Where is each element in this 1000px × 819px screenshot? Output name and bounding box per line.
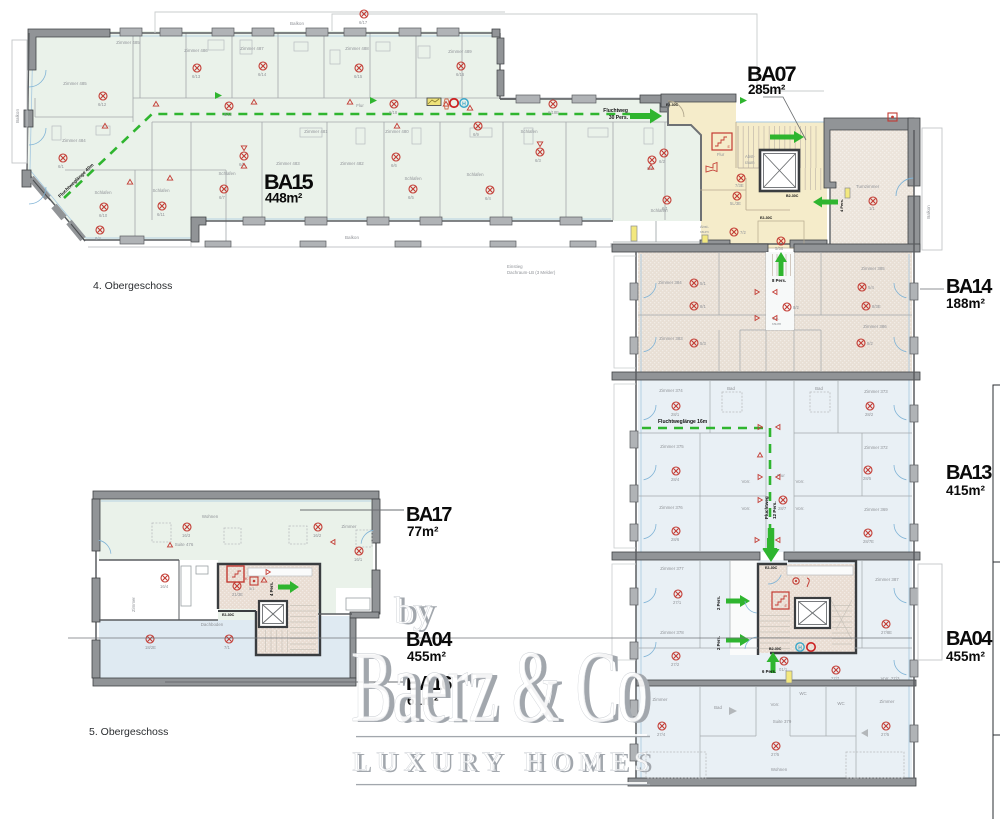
svg-text:7/2: 7/2 (740, 230, 746, 235)
svg-text:raum: raum (745, 160, 755, 165)
svg-text:6/6: 6/6 (391, 163, 397, 168)
svg-text:BA14: BA14 (946, 276, 993, 298)
svg-text:Balkon: Balkon (345, 235, 359, 240)
svg-text:6/7: 6/7 (219, 195, 225, 200)
svg-text:27/4: 27/4 (657, 732, 666, 737)
svg-text:Zimmer 369: Zimmer 369 (864, 507, 888, 512)
svg-text:Balkon: Balkon (290, 21, 304, 26)
svg-text:6/13: 6/13 (192, 74, 201, 79)
svg-text:Zimmer 374: Zimmer 374 (659, 388, 683, 393)
svg-text:Zimmer 383: Zimmer 383 (659, 336, 683, 341)
svg-text:1/1: 1/1 (869, 206, 875, 211)
svg-text:Zimmer 480: Zimmer 480 (385, 129, 409, 134)
svg-text:Zimmer 483: Zimmer 483 (276, 161, 300, 166)
svg-text:7/3E: 7/3E (735, 183, 744, 188)
svg-text:6/11: 6/11 (157, 212, 166, 217)
svg-text:BA13: BA13 (946, 462, 992, 484)
svg-text:Bad: Bad (727, 386, 735, 391)
svg-text:Bad: Bad (815, 386, 823, 391)
svg-text:6/15: 6/15 (354, 74, 363, 79)
svg-text:Fluchtweglänge 16m: Fluchtweglänge 16m (658, 419, 708, 425)
svg-text:Wohnen: Wohnen (202, 514, 219, 519)
svg-text:Fluchtweg: Fluchtweg (603, 108, 628, 114)
svg-text:28/4: 28/4 (671, 477, 680, 482)
svg-text:Zimmer 489: Zimmer 489 (448, 49, 472, 54)
svg-text:Zimmer 373: Zimmer 373 (864, 389, 888, 394)
svg-text:5L/3E: 5L/3E (730, 201, 741, 206)
svg-text:27/1: 27/1 (673, 600, 682, 605)
svg-text:Zimmer 376: Zimmer 376 (659, 505, 683, 510)
svg-text:Zimmer 375: Zimmer 375 (660, 444, 684, 449)
svg-text:6/1: 6/1 (58, 164, 64, 169)
svg-text:Abst-: Abst- (700, 225, 710, 229)
svg-text:448m²: 448m² (265, 191, 303, 206)
svg-text:H: H (798, 645, 802, 651)
svg-text:8/3E: 8/3E (872, 304, 881, 309)
svg-text:5/1: 5/1 (700, 281, 706, 286)
svg-text:6/9: 6/9 (473, 132, 479, 137)
svg-text:Dachboden: Dachboden (201, 622, 224, 627)
svg-text:Vorr.: Vorr. (770, 702, 779, 707)
svg-text:Zimmer 486: Zimmer 486 (184, 48, 208, 53)
svg-text:Zimmer 372: Zimmer 372 (864, 445, 888, 450)
svg-text:4 Pers.: 4 Pers. (269, 582, 274, 596)
svg-text:5/3: 5/3 (700, 341, 706, 346)
svg-text:12 Pers.: 12 Pers. (772, 501, 777, 519)
svg-text:BA17: BA17 (406, 504, 452, 526)
svg-text:E2-30C: E2-30C (760, 216, 773, 220)
svg-text:Zimmer: Zimmer (131, 597, 136, 612)
svg-text:18/2E: 18/2E (145, 645, 156, 650)
svg-text:6/17: 6/17 (359, 20, 368, 25)
svg-text:6/3: 6/3 (535, 158, 541, 163)
svg-text:27/8E: 27/8E (881, 630, 892, 635)
svg-text:Suite 476: Suite 476 (175, 542, 194, 547)
svg-text:Flur: Flur (356, 103, 364, 108)
svg-text:Zimmer 385: Zimmer 385 (861, 266, 885, 271)
svg-text:28/2: 28/2 (865, 412, 874, 417)
svg-text:Vorr.: Vorr. (741, 506, 750, 511)
svg-text:B2-30C: B2-30C (769, 647, 782, 651)
svg-text:415m²: 415m² (946, 483, 986, 498)
svg-text:2 Pers.: 2 Pers. (716, 596, 721, 610)
svg-text:WC: WC (837, 701, 844, 706)
svg-text:Zimmer 387: Zimmer 387 (875, 577, 899, 582)
svg-text:Balkon: Balkon (15, 109, 20, 123)
svg-text:28/6: 28/6 (671, 537, 680, 542)
svg-text:Zimmer 487: Zimmer 487 (240, 46, 264, 51)
svg-text:Turnzimmer: Turnzimmer (856, 184, 880, 189)
svg-text:Zimmer 484: Zimmer 484 (62, 138, 86, 143)
svg-text:Zimmer 482: Zimmer 482 (340, 161, 364, 166)
svg-text:16/3: 16/3 (182, 533, 191, 538)
svg-text:Zimmer 488: Zimmer 488 (345, 46, 369, 51)
svg-text:8/1: 8/1 (700, 304, 706, 309)
svg-text:27/2: 27/2 (671, 662, 680, 667)
svg-text:28/7: 28/7 (778, 506, 787, 511)
svg-text:H: H (462, 101, 466, 107)
svg-text:4. Obergeschoss: 4. Obergeschoss (93, 280, 172, 292)
svg-text:30 Pers.: 30 Pers. (609, 115, 629, 121)
svg-text:raum: raum (772, 321, 782, 326)
svg-text:16/2: 16/2 (313, 533, 322, 538)
svg-text:5/1: 5/1 (249, 586, 255, 591)
svg-text:Suite 379: Suite 379 (773, 719, 792, 724)
svg-text:455m²: 455m² (946, 649, 986, 664)
svg-text:Vorr. 27/3: Vorr. 27/3 (881, 676, 900, 681)
svg-text:6/12: 6/12 (98, 102, 107, 107)
svg-text:16/1: 16/1 (354, 557, 363, 562)
svg-text:E2-30C: E2-30C (666, 103, 679, 107)
svg-text:E2-30C: E2-30C (765, 566, 778, 570)
svg-text:E2-30C: E2-30C (222, 613, 235, 617)
svg-text:6/4: 6/4 (485, 196, 491, 201)
svg-text:Wohnen: Wohnen (771, 767, 788, 772)
svg-text:28/5: 28/5 (863, 476, 872, 481)
svg-text:27/7: 27/7 (831, 676, 840, 681)
svg-text:Vorr.: Vorr. (795, 479, 804, 484)
svg-text:28/7E: 28/7E (863, 539, 874, 544)
svg-text:Schlafen: Schlafen (218, 171, 236, 176)
svg-text:5/56: 5/56 (775, 246, 784, 251)
svg-text:BA04: BA04 (946, 628, 993, 650)
svg-text:188m²: 188m² (946, 296, 986, 311)
svg-text:Bad: Bad (714, 705, 722, 710)
svg-text:K: K (245, 576, 248, 581)
svg-text:Zimmer: Zimmer (880, 699, 895, 704)
svg-text:5/4: 5/4 (868, 285, 874, 290)
svg-text:6/14: 6/14 (258, 72, 267, 77)
svg-text:by: by (394, 590, 432, 632)
svg-text:Balkon: Balkon (926, 205, 931, 219)
svg-text:Baerz & Co: Baerz & Co (351, 630, 648, 744)
svg-text:Schlafen: Schlafen (404, 176, 422, 181)
svg-text:6/18E: 6/18E (548, 110, 559, 115)
svg-text:Zimmer: Zimmer (342, 524, 357, 529)
svg-text:77m²: 77m² (407, 524, 439, 539)
svg-text:5/2: 5/2 (867, 341, 873, 346)
svg-text:Schlafen: Schlafen (520, 129, 538, 134)
svg-text:27/5: 27/5 (771, 752, 780, 757)
svg-text:Zimmer 386: Zimmer 386 (863, 324, 887, 329)
svg-text:Vorr.: Vorr. (741, 479, 750, 484)
svg-text:Zimmer 384: Zimmer 384 (658, 280, 682, 285)
svg-text:Einstieg: Einstieg (507, 264, 523, 269)
svg-text:6/18: 6/18 (389, 110, 398, 115)
svg-text:Zimmer 485: Zimmer 485 (63, 81, 87, 86)
svg-text:Zimmer 481: Zimmer 481 (304, 129, 328, 134)
svg-text:Zimmer 378: Zimmer 378 (660, 630, 684, 635)
svg-text:16/4: 16/4 (160, 584, 169, 589)
svg-text:6/11: 6/11 (224, 112, 233, 117)
svg-text:5. Obergeschoss: 5. Obergeschoss (89, 726, 168, 738)
svg-text:Fluchtweg: Fluchtweg (764, 496, 769, 519)
svg-text:285m²: 285m² (748, 82, 786, 97)
svg-text:28/1: 28/1 (671, 412, 680, 417)
svg-text:Schlafen: Schlafen (152, 188, 170, 193)
svg-text:raum: raum (700, 230, 709, 234)
svg-text:B2-30C: B2-30C (786, 194, 799, 198)
svg-text:Vorr.: Vorr. (795, 506, 804, 511)
svg-text:Zimmer 377: Zimmer 377 (660, 566, 684, 571)
svg-text:6/4: 6/4 (95, 236, 101, 241)
svg-text:6/10: 6/10 (99, 213, 108, 218)
svg-text:7/1: 7/1 (224, 645, 230, 650)
svg-text:TV3E: TV3E (868, 117, 878, 122)
svg-text:Zimmer 485: Zimmer 485 (116, 40, 140, 45)
svg-text:Flur: Flur (717, 152, 725, 157)
svg-text:8/2: 8/2 (793, 305, 799, 310)
svg-text:WC: WC (799, 691, 806, 696)
svg-text:6 Pers.: 6 Pers. (762, 669, 776, 674)
svg-text:6/16: 6/16 (456, 72, 465, 77)
svg-text:6/2: 6/2 (659, 159, 665, 164)
svg-text:8 Pers.: 8 Pers. (772, 278, 786, 283)
svg-text:Schlafen: Schlafen (466, 172, 484, 177)
svg-text:6/1: 6/1 (662, 206, 668, 211)
svg-text:27/5: 27/5 (881, 732, 890, 737)
svg-text:21/3E: 21/3E (232, 592, 243, 597)
svg-text:Dachraum-LB (3 Melder): Dachraum-LB (3 Melder) (507, 270, 556, 275)
svg-text:Schlafen: Schlafen (94, 190, 112, 195)
svg-text:Zimmer: Zimmer (653, 697, 668, 702)
svg-text:Abst-: Abst- (745, 154, 755, 159)
svg-text:4 Pers.: 4 Pers. (839, 199, 844, 212)
svg-text:6/5: 6/5 (408, 195, 414, 200)
